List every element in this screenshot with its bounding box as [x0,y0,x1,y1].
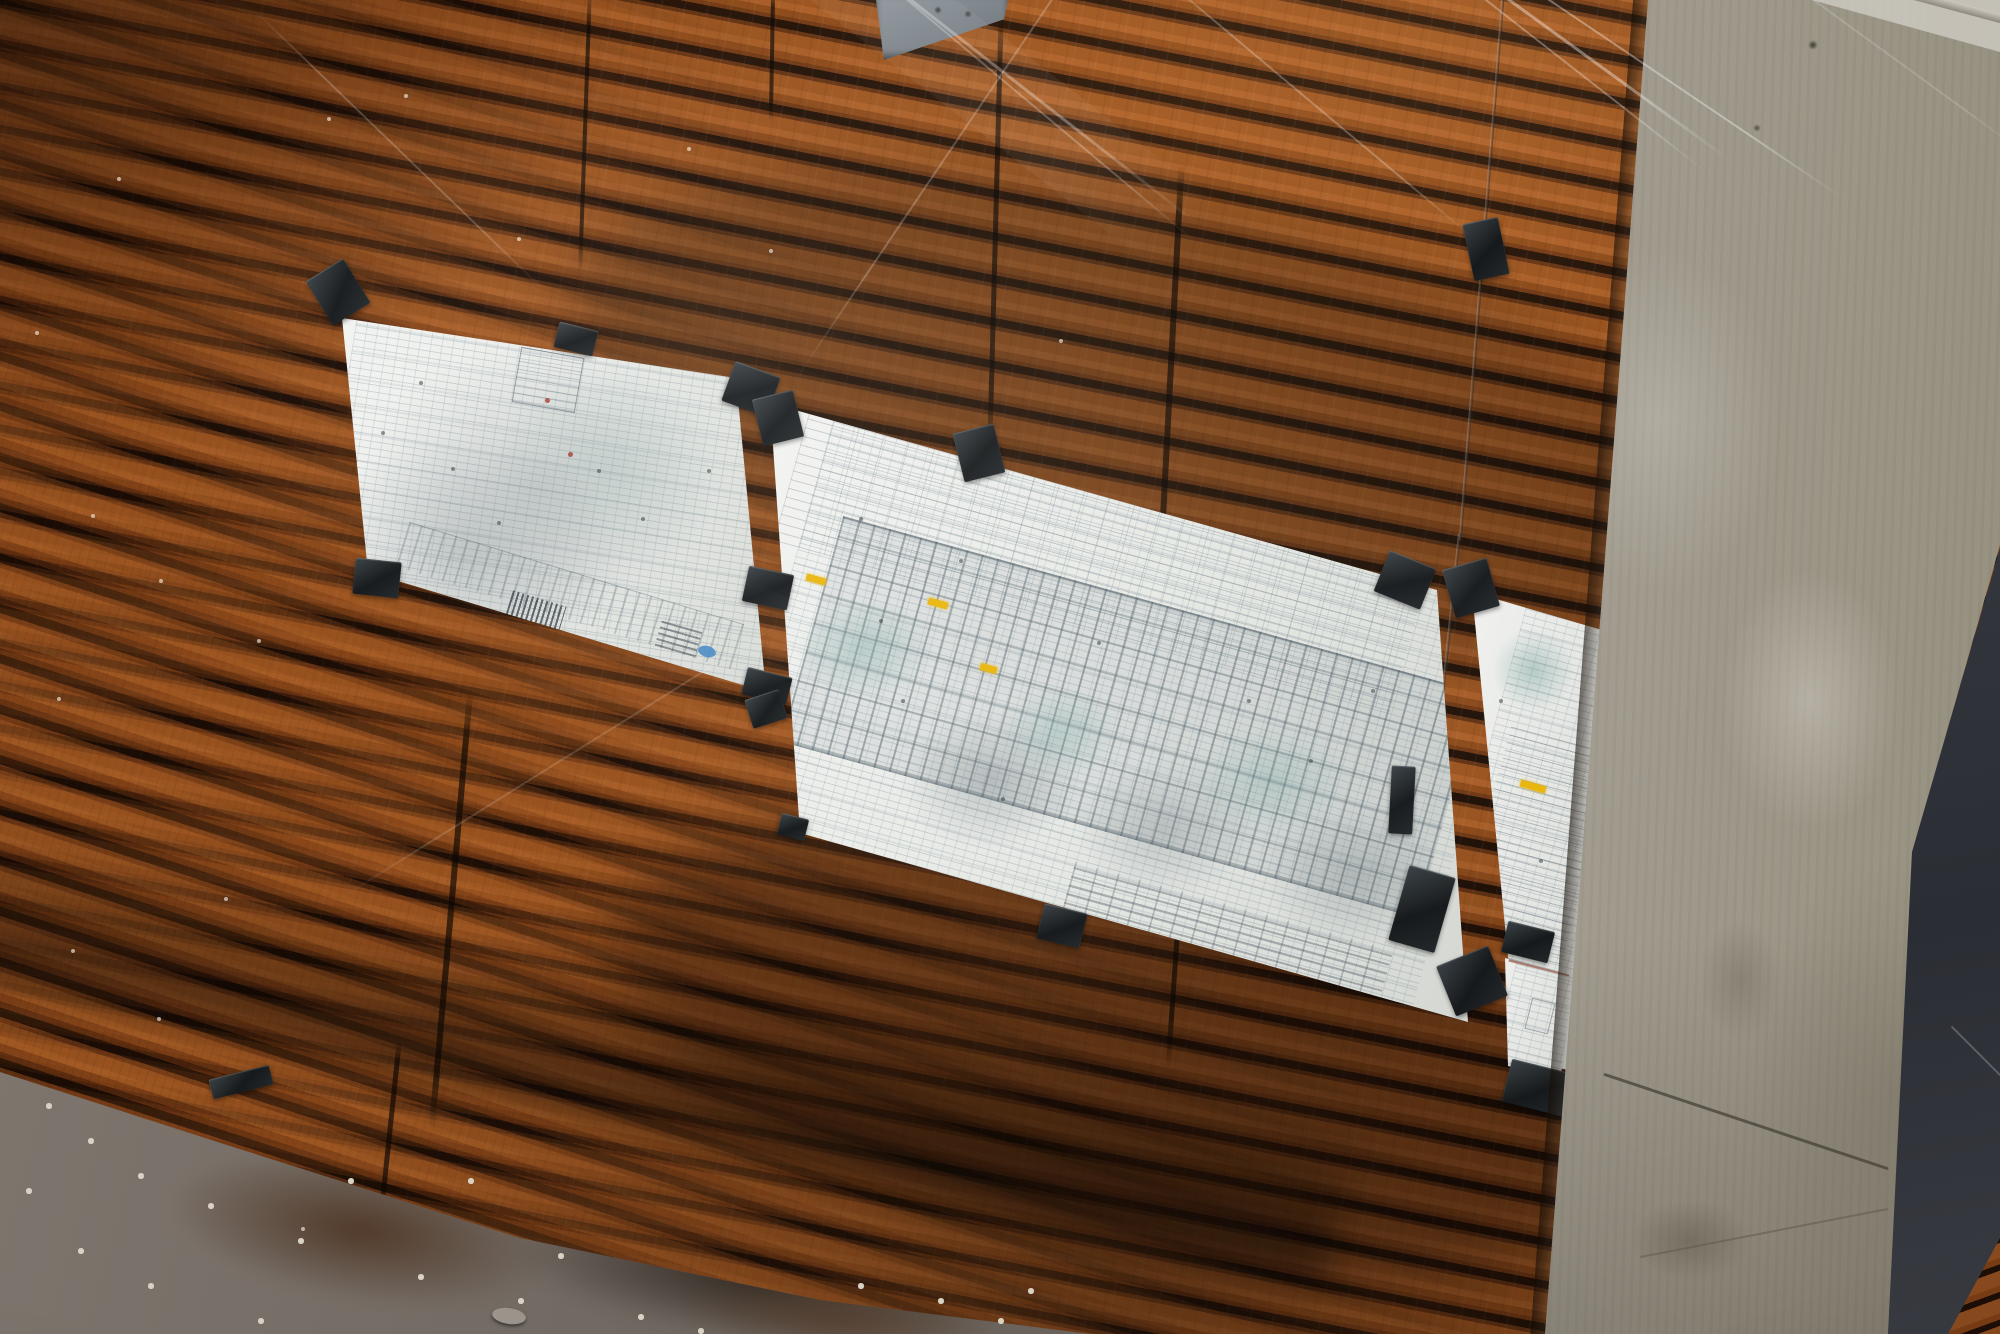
photo-vignette [0,0,2000,1334]
construction-blueprints-photo [0,0,2000,1334]
